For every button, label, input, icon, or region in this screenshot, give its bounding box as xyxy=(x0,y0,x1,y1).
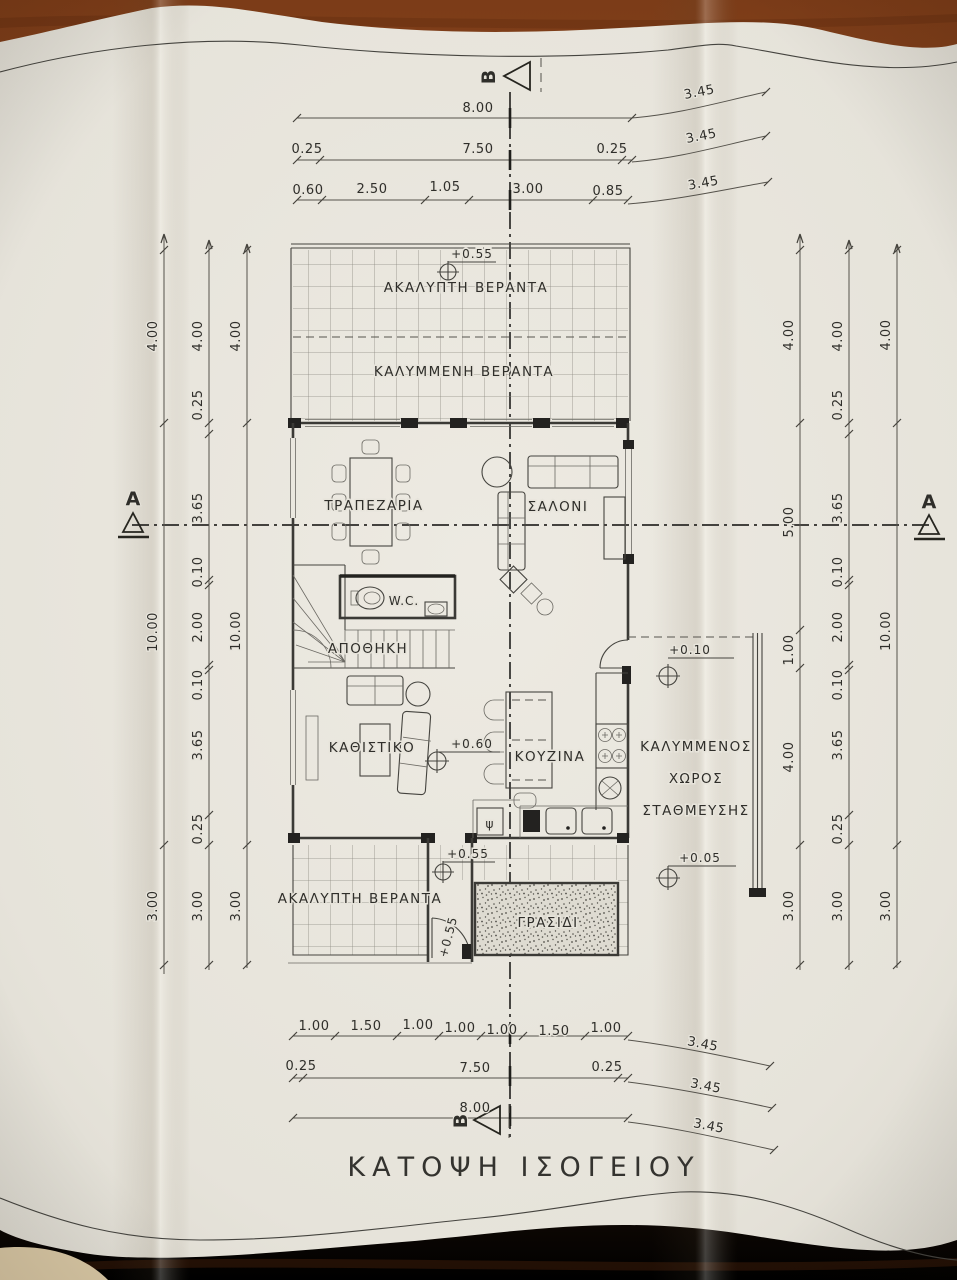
dim: 0.25 xyxy=(286,1059,317,1074)
room-label-sitting: ΚΑΘΙΣΤΙΚΟ xyxy=(329,740,415,756)
dim: 3.65 xyxy=(831,730,846,761)
floor-plan-drawing: ΑΚΑΛΥΠΤΗ ΒΕΡΑΝΤΑ +0.55 ΚΑΛΥΜΜΕΝΗ ΒΕΡΑΝΤΑ… xyxy=(0,0,957,1280)
room-label-wc: W.C. xyxy=(389,594,420,608)
level-parking-bottom: +0.05 xyxy=(679,851,721,865)
room-label-parking-2: ΧΩΡΟΣ xyxy=(669,771,723,787)
dim: 8.00 xyxy=(460,1101,491,1116)
dim: 3.65 xyxy=(191,730,206,761)
dim: 4.00 xyxy=(782,320,797,351)
dim: 3.00 xyxy=(782,891,797,922)
sink-drain-2 xyxy=(602,826,606,830)
dim: 1.00 xyxy=(782,635,797,666)
bottom-veranda-tiles-right xyxy=(618,880,628,955)
level-top-veranda: +0.55 xyxy=(451,247,493,261)
column xyxy=(288,833,300,843)
dim: 1.00 xyxy=(445,1021,476,1036)
dim: 1.00 xyxy=(403,1018,434,1033)
dim: 0.60 xyxy=(293,183,324,198)
dim: 0.10 xyxy=(191,557,206,588)
dim: 2.50 xyxy=(357,182,388,197)
level-parking-top: +0.10 xyxy=(669,643,711,657)
sink-drain-1 xyxy=(566,826,570,830)
dim: 4.00 xyxy=(831,321,846,352)
dim: 1.50 xyxy=(351,1019,382,1034)
dim: 3.00 xyxy=(513,182,544,197)
dim: 3.00 xyxy=(879,891,894,922)
dim: 0.25 xyxy=(191,390,206,421)
dim: 3.00 xyxy=(229,891,244,922)
photo-of-floor-plan: ΑΚΑΛΥΠΤΗ ΒΕΡΑΝΤΑ +0.55 ΚΑΛΥΜΜΕΝΗ ΒΕΡΑΝΤΑ… xyxy=(0,0,957,1280)
dim: 3.00 xyxy=(146,891,161,922)
level-bottom-veranda: +0.55 xyxy=(447,847,489,861)
dim: 7.50 xyxy=(460,1061,491,1076)
dim: 2.00 xyxy=(831,612,846,643)
section-letter-top: Β xyxy=(478,70,500,84)
dim: 2.00 xyxy=(191,612,206,643)
dim: 0.25 xyxy=(831,814,846,845)
top-veranda-tiles xyxy=(293,250,628,421)
column xyxy=(401,418,418,428)
column xyxy=(450,418,467,428)
dim: 4.00 xyxy=(782,742,797,773)
dim: 4.00 xyxy=(146,321,161,352)
dim: 0.10 xyxy=(831,557,846,588)
dim: 0.25 xyxy=(292,142,323,157)
room-label-grass: ΓΡΑΣΙΔΙ xyxy=(517,915,578,931)
column xyxy=(288,418,301,428)
section-letter-bottom: Β xyxy=(450,1114,472,1128)
drawing-title: ΚΑΤΟΨΗ ΙΣΟΓΕΙΟΥ xyxy=(347,1152,700,1183)
room-label-top-open-veranda: ΑΚΑΛΥΠΤΗ ΒΕΡΑΝΤΑ xyxy=(384,280,548,296)
column xyxy=(533,418,550,428)
room-label-parking-1: ΚΑΛΥΜΜΕΝΟΣ xyxy=(640,739,752,755)
dim: 8.00 xyxy=(463,101,494,116)
room-label-kitchen: ΚΟΥΖΙΝΑ xyxy=(515,749,586,765)
room-label-covered-veranda: ΚΑΛΥΜΜΕΝΗ ΒΕΡΑΝΤΑ xyxy=(374,364,554,380)
dim: 1.00 xyxy=(591,1021,622,1036)
room-label-living: ΣΑΛΟΝΙ xyxy=(528,499,589,515)
dim: 4.00 xyxy=(879,320,894,351)
dim: 0.25 xyxy=(831,390,846,421)
dim: 10.00 xyxy=(146,612,161,652)
dim: 0.25 xyxy=(592,1060,623,1075)
dim: 0.85 xyxy=(593,184,624,199)
level-sitting: +0.60 xyxy=(451,737,493,751)
dim: 4.00 xyxy=(229,321,244,352)
dim: 3.00 xyxy=(831,891,846,922)
room-label-storage: ΑΠΟΘΗΚΗ xyxy=(328,641,408,657)
dim: 3.65 xyxy=(831,493,846,524)
dim: 0.25 xyxy=(191,814,206,845)
column xyxy=(622,666,631,684)
dim: 1.00 xyxy=(487,1023,518,1038)
dim: 10.00 xyxy=(229,611,244,651)
dim: 1.00 xyxy=(299,1019,330,1034)
nook-column xyxy=(462,944,471,959)
section-letter-right: Α xyxy=(922,491,937,513)
dim: 0.10 xyxy=(191,670,206,701)
dim: 1.05 xyxy=(430,180,461,195)
counter-black xyxy=(523,810,540,832)
dim: 0.25 xyxy=(597,142,628,157)
dim: 10.00 xyxy=(879,611,894,651)
room-label-bottom-open-veranda: ΑΚΑΛΥΠΤΗ ΒΕΡΑΝΤΑ xyxy=(278,891,442,907)
room-label-parking-3: ΣΤΑΘΜΕΥΣΗΣ xyxy=(642,803,749,819)
room-label-dining: ΤΡΑΠΕΖΑΡΙΑ xyxy=(323,498,423,514)
parking-wall-cap xyxy=(749,888,766,897)
dim: 3.00 xyxy=(191,891,206,922)
section-letter-left: Α xyxy=(126,488,141,510)
fridge-symbol: ψ xyxy=(486,817,495,831)
dim: 0.10 xyxy=(831,670,846,701)
dim: 5.00 xyxy=(782,507,797,538)
dim: 1.50 xyxy=(539,1024,570,1039)
dim: 7.50 xyxy=(463,142,494,157)
column xyxy=(617,833,629,843)
dim: 3.65 xyxy=(191,493,206,524)
dim: 4.00 xyxy=(191,321,206,352)
column xyxy=(623,440,634,449)
